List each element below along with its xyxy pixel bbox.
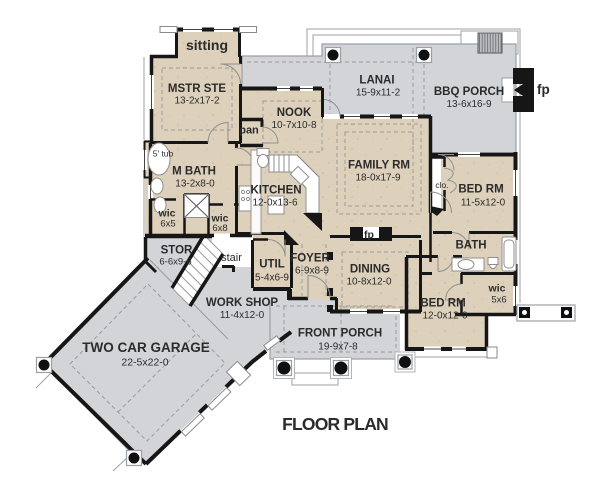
svg-text:BBQ PORCH: BBQ PORCH (434, 86, 504, 98)
svg-text:WORK SHOP: WORK SHOP (206, 297, 279, 309)
svg-text:BED RM: BED RM (458, 184, 503, 196)
svg-text:DINING: DINING (350, 264, 390, 276)
svg-text:10-8x12-0: 10-8x12-0 (346, 277, 391, 288)
svg-text:18-0x17-9: 18-0x17-9 (355, 173, 400, 184)
svg-text:11-4x12-0: 11-4x12-0 (220, 310, 265, 321)
svg-text:KITCHEN: KITCHEN (250, 185, 301, 197)
svg-text:TWO CAR GARAGE: TWO CAR GARAGE (82, 340, 210, 355)
svg-text:11-5x12-0: 11-5x12-0 (461, 198, 506, 209)
svg-text:22-5x22-0: 22-5x22-0 (121, 357, 168, 369)
svg-text:15-9x11-2: 15-9x11-2 (356, 88, 401, 99)
svg-text:LANAI: LANAI (359, 75, 394, 87)
svg-text:13-6x16-9: 13-6x16-9 (446, 99, 491, 110)
svg-text:5x6: 5x6 (491, 295, 506, 306)
svg-text:13-2x8-0: 13-2x8-0 (175, 179, 215, 190)
svg-text:MSTR STE: MSTR STE (168, 83, 226, 95)
svg-text:19-9x7-8: 19-9x7-8 (318, 342, 358, 353)
svg-text:NOOK: NOOK (277, 107, 312, 119)
svg-text:stair: stair (221, 252, 242, 264)
svg-text:FRONT PORCH: FRONT PORCH (298, 328, 382, 340)
svg-text:6-9x8-9: 6-9x8-9 (295, 266, 329, 277)
svg-text:pan: pan (239, 125, 259, 137)
svg-text:FLOOR PLAN: FLOOR PLAN (282, 414, 388, 434)
svg-text:6-6x9-6: 6-6x9-6 (159, 257, 191, 268)
svg-text:fp: fp (537, 82, 550, 97)
svg-text:12-0x12-0: 12-0x12-0 (422, 311, 467, 322)
svg-text:10-7x10-8: 10-7x10-8 (271, 120, 316, 131)
svg-text:clo.: clo. (435, 180, 448, 190)
svg-text:fp: fp (364, 229, 374, 241)
svg-text:BED RM: BED RM (420, 298, 465, 310)
svg-text:M BATH: M BATH (172, 166, 216, 178)
svg-text:sitting: sitting (186, 37, 228, 53)
svg-text:UTIL: UTIL (259, 259, 285, 271)
svg-text:wic: wic (488, 283, 506, 295)
svg-text:12-0x13-6: 12-0x13-6 (252, 198, 297, 209)
svg-text:STOR: STOR (161, 245, 193, 257)
svg-text:BATH: BATH (455, 240, 486, 252)
svg-text:5' tub: 5' tub (153, 149, 174, 159)
svg-text:FAMILY RM: FAMILY RM (348, 160, 410, 172)
svg-text:6x5: 6x5 (160, 219, 175, 230)
svg-text:FOYER: FOYER (290, 253, 330, 265)
svg-text:13-2x17-2: 13-2x17-2 (174, 96, 219, 107)
svg-text:6x8: 6x8 (212, 223, 227, 234)
svg-text:5-4x6-9: 5-4x6-9 (255, 273, 289, 284)
